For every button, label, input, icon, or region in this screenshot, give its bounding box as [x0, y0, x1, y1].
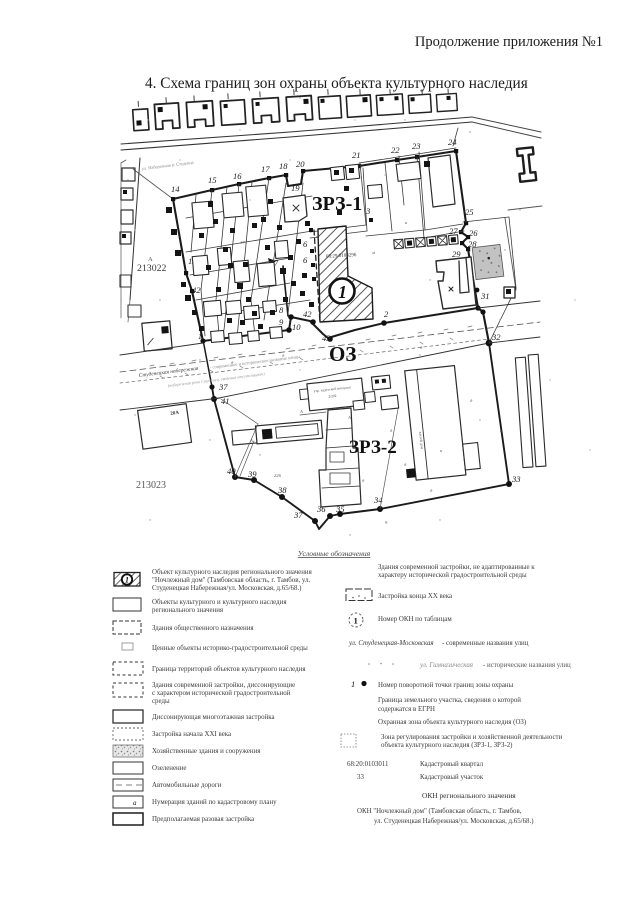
svg-text:16: 16	[233, 171, 242, 181]
svg-text:9: 9	[279, 317, 284, 327]
svg-text:ОКН регионального значения: ОКН регионального значения	[422, 791, 516, 800]
svg-text:с: с	[316, 234, 318, 239]
svg-text:68:20:0103011: 68:20:0103011	[347, 761, 389, 768]
svg-text:Здания современной застройки,: Здания современной застройки, диссонирую…	[152, 682, 295, 689]
svg-text:ОЗ: ОЗ	[329, 342, 356, 366]
svg-text:Предполагаемая разовая застрой: Предполагаемая разовая застройка	[152, 816, 254, 823]
svg-text:д: д	[430, 488, 433, 493]
svg-text:26: 26	[469, 228, 478, 238]
svg-text:42: 42	[303, 309, 312, 319]
svg-text:н: н	[405, 220, 408, 225]
svg-text:40: 40	[227, 466, 236, 476]
svg-text:ул. Набережная р. Студенца: ул. Набережная р. Студенца	[142, 160, 194, 171]
svg-text:а: а	[133, 799, 137, 807]
svg-text:32: 32	[491, 332, 501, 342]
svg-text:22: 22	[391, 145, 400, 155]
svg-text:4. Схема границ зон охраны объ: 4. Схема границ зон охраны объекта культ…	[145, 75, 528, 92]
svg-text:17: 17	[240, 240, 245, 245]
svg-text:д: д	[404, 462, 407, 467]
svg-text:2: 2	[384, 309, 389, 319]
svg-text:Объект культурного наследия ре: Объект культурного наследия региональног…	[152, 569, 313, 576]
svg-text:1: 1	[354, 616, 358, 626]
svg-text:ЗРЗ-1: ЗРЗ-1	[312, 193, 362, 215]
svg-text:ЗРЗ-2: ЗРЗ-2	[349, 437, 397, 458]
svg-text:68:29:0103296: 68:29:0103296	[326, 253, 357, 260]
svg-text:15: 15	[208, 175, 217, 185]
svg-text:20: 20	[296, 159, 305, 169]
svg-text:д: д	[420, 345, 423, 350]
svg-text:41: 41	[221, 396, 230, 406]
svg-text:14: 14	[171, 184, 180, 194]
svg-text:"Ночлежный дом" (Тамбовская об: "Ночлежный дом" (Тамбовская область, г. …	[152, 577, 311, 584]
svg-text:33: 33	[357, 774, 364, 781]
svg-text:23: 23	[412, 141, 421, 151]
svg-text:33: 33	[511, 474, 521, 484]
svg-text:Ценные объекты историко-градос: Ценные объекты историко-градостроительно…	[152, 645, 308, 652]
svg-text:Кадастровый участок: Кадастровый участок	[420, 774, 484, 781]
svg-text:Здания современной застройки,: Здания современной застройки, не адаптир…	[378, 564, 535, 571]
svg-text:24: 24	[448, 137, 457, 147]
svg-text:17: 17	[261, 164, 270, 174]
svg-text:Застройка начала XXI века: Застройка начала XXI века	[152, 731, 231, 738]
svg-text:25: 25	[465, 207, 474, 217]
svg-text:Объекты культурного и культурн: Объекты культурного и культурного наслед…	[152, 599, 287, 606]
svg-text:213023: 213023	[136, 480, 166, 491]
svg-text:6: 6	[303, 239, 308, 249]
svg-text:Условные обозначения: Условные обозначения	[298, 549, 371, 558]
svg-text:А: А	[347, 415, 351, 420]
svg-text:Хозяйственные здания и сооруже: Хозяйственные здания и сооружения	[152, 748, 261, 755]
svg-text:21: 21	[352, 150, 361, 160]
svg-text:1: 1	[338, 282, 347, 302]
svg-text:9: 9	[385, 520, 388, 525]
svg-text:1: 1	[351, 679, 355, 689]
svg-text:среды: среды	[152, 698, 170, 705]
svg-text:м: м	[371, 250, 375, 255]
svg-text:Застройка конца XX века: Застройка конца XX века	[378, 593, 452, 600]
svg-text:ОКН "Ночлежный дом" (Тамбовска: ОКН "Ночлежный дом" (Тамбовская область,…	[357, 808, 522, 815]
svg-text:38: 38	[277, 485, 287, 495]
svg-text:10: 10	[292, 322, 301, 332]
svg-text:объекта культурного наследия (: объекта культурного наследия (ЗРЗ-1, ЗРЗ…	[381, 742, 512, 749]
svg-text:37: 37	[293, 510, 303, 520]
svg-text:Номер поворотной точки границ: Номер поворотной точки границ зоны охран…	[378, 682, 514, 689]
svg-text:42: 42	[192, 285, 201, 295]
svg-text:Озеленение: Озеленение	[152, 765, 186, 772]
svg-text:д: д	[362, 478, 365, 483]
svg-text:регионального значения: регионального значения	[152, 607, 224, 614]
svg-text:31: 31	[480, 291, 490, 301]
svg-text:д: д	[390, 428, 393, 433]
svg-text:- современное и историческое н: - современное и историческое название ул…	[210, 354, 301, 370]
svg-text:Кадастровый квартал: Кадастровый квартал	[420, 761, 484, 768]
svg-text:6: 6	[303, 255, 308, 265]
svg-text:- современные названия улиц: - современные названия улиц	[442, 640, 529, 647]
svg-text:Граница территорий объектов ку: Граница территорий объектов культурного …	[152, 666, 306, 673]
svg-text:8: 8	[279, 305, 284, 315]
svg-text:Граница земельного участка, св: Граница земельного участка, сведения о к…	[378, 697, 521, 704]
svg-text:1: 1	[125, 576, 129, 585]
svg-text:А: А	[249, 438, 253, 443]
svg-text:Студенецкая Набережная/ул. Мос: Студенецкая Набережная/ул. Московская, д…	[152, 585, 301, 592]
svg-text:29: 29	[452, 249, 461, 259]
svg-text:с характером исторической град: с характером исторической градостроитель…	[152, 690, 291, 697]
svg-text:содержатся в ЕГРН: содержатся в ЕГРН	[378, 706, 435, 713]
svg-text:ул. Гимназическая: ул. Гимназическая	[419, 662, 473, 669]
svg-text:характеру исторической градост: характеру исторической градостроительной…	[378, 572, 527, 579]
svg-text:18: 18	[279, 161, 288, 171]
svg-text:Номер ОКН по таблицам: Номер ОКН по таблицам	[378, 616, 452, 623]
svg-text:19: 19	[291, 183, 300, 193]
svg-text:ул. Студенецкая-Московская: ул. Студенецкая-Московская	[348, 640, 434, 647]
svg-text:213022: 213022	[137, 263, 166, 274]
svg-text:- исторические названия улиц: - исторические названия улиц	[483, 662, 571, 669]
svg-text:39: 39	[247, 469, 257, 479]
svg-text:37: 37	[218, 382, 228, 392]
svg-text:Диссонирующая многоэтажная зас: Диссонирующая многоэтажная застройка	[152, 714, 275, 721]
svg-text:Охранная зона объекта культурн: Охранная зона объекта культурного наслед…	[378, 719, 526, 726]
svg-text:Нумерация зданий по кадастрово: Нумерация зданий по кадастровому плану	[152, 799, 277, 806]
svg-text:226: 226	[274, 473, 282, 478]
svg-text:д: д	[470, 398, 473, 403]
svg-text:Студенецкая набережная: Студенецкая набережная	[138, 365, 199, 379]
svg-text:ул. Студенецкая Набережная/ул.: ул. Студенецкая Набережная/ул. Московска…	[374, 818, 534, 825]
svg-text:Автомобильные дороги: Автомобильные дороги	[152, 782, 222, 789]
svg-text:Здания общественного назначени: Здания общественного назначения	[152, 625, 254, 632]
svg-text:А: А	[299, 409, 303, 414]
svg-text:(набережная реки Студенец, све: (набережная реки Студенец, сведения отсу…	[168, 371, 266, 389]
svg-text:А: А	[148, 256, 153, 263]
svg-text:Продолжение приложения №1: Продолжение приложения №1	[415, 34, 603, 50]
svg-text:Зона регулирования застройки и: Зона регулирования застройки и хозяйстве…	[381, 734, 563, 741]
